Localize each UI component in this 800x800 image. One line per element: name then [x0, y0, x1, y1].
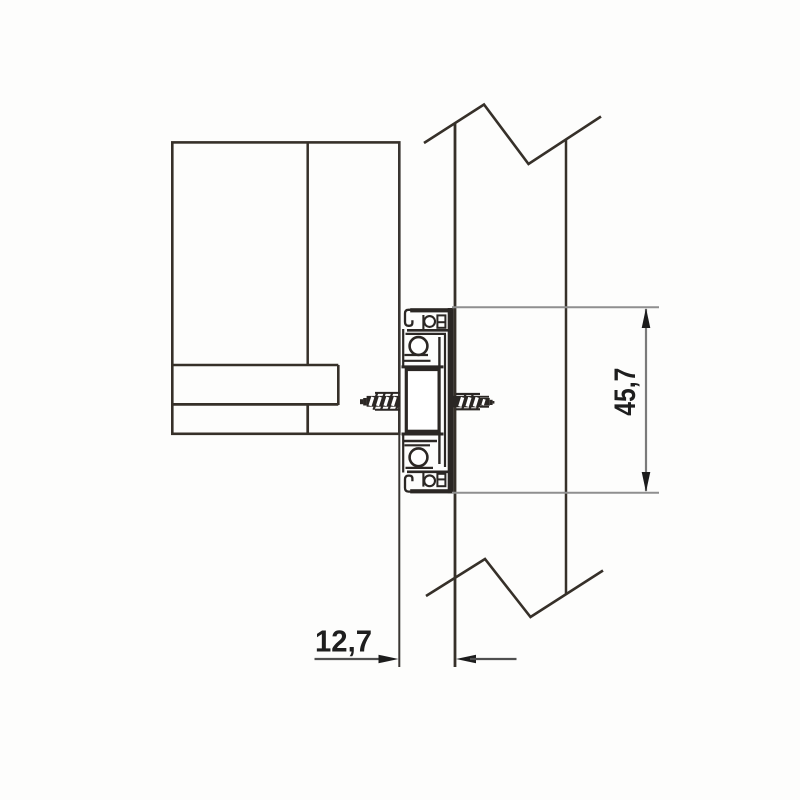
svg-text:45,7: 45,7	[609, 368, 642, 416]
svg-text:12,7: 12,7	[315, 625, 372, 659]
